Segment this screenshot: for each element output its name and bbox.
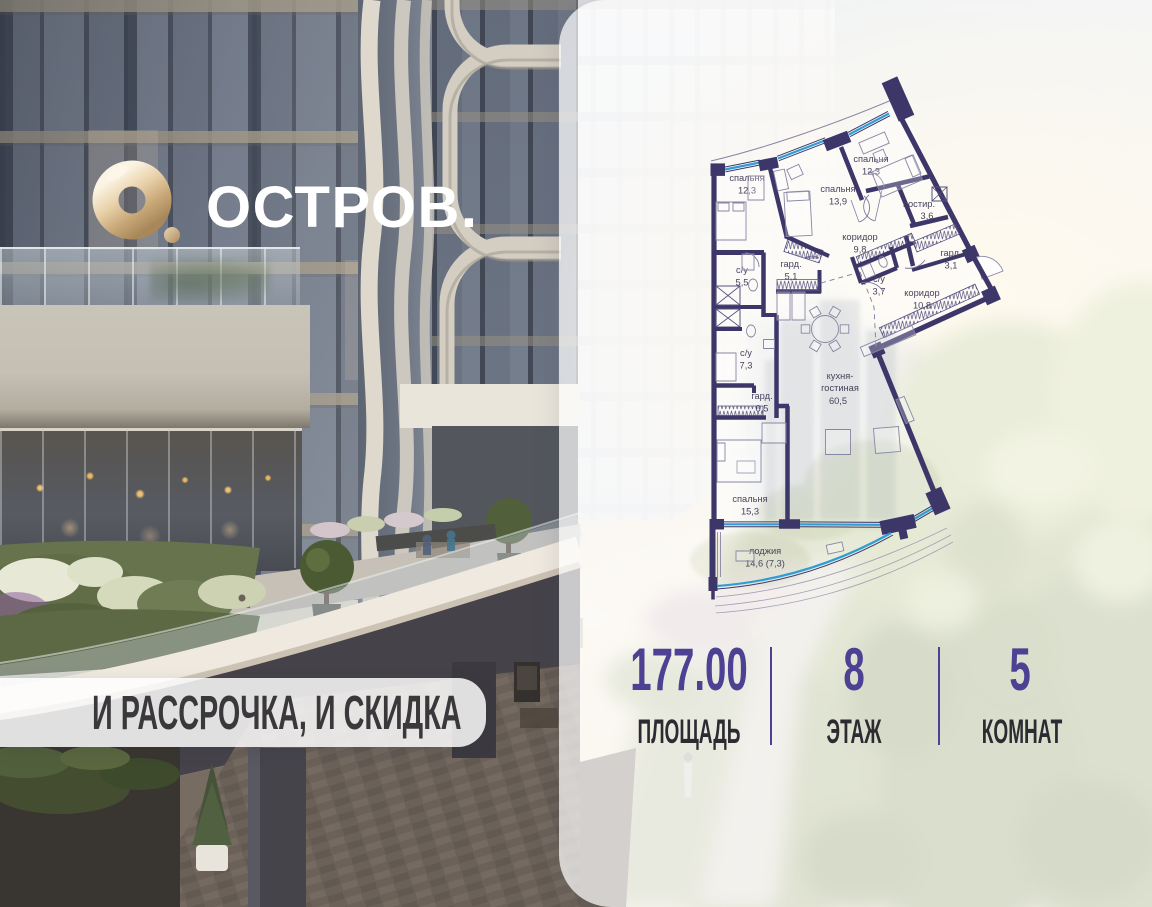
svg-text:7,3: 7,3 bbox=[740, 361, 753, 371]
svg-text:3,1: 3,1 bbox=[945, 261, 958, 271]
svg-text:коридор: коридор bbox=[842, 232, 877, 242]
svg-text:6,5: 6,5 bbox=[756, 404, 769, 414]
svg-text:коридор: коридор bbox=[904, 288, 939, 298]
svg-text:3,7: 3,7 bbox=[873, 287, 886, 297]
svg-text:спальня: спальня bbox=[732, 494, 767, 504]
svg-text:3,6: 3,6 bbox=[921, 211, 934, 221]
svg-text:гард.: гард. bbox=[780, 259, 801, 269]
svg-text:13,9: 13,9 bbox=[829, 197, 847, 207]
svg-text:спальня: спальня bbox=[820, 184, 855, 194]
svg-text:кухня-: кухня- bbox=[827, 371, 854, 381]
svg-text:10,8: 10,8 bbox=[913, 301, 931, 311]
svg-text:гард.: гард. bbox=[940, 248, 961, 258]
svg-text:5,5: 5,5 bbox=[736, 278, 749, 288]
svg-text:5,1: 5,1 bbox=[785, 272, 798, 282]
svg-text:гостиная: гостиная bbox=[821, 383, 859, 393]
svg-text:постир.: постир. bbox=[903, 199, 935, 209]
svg-text:60,5: 60,5 bbox=[829, 396, 847, 406]
svg-text:с/у: с/у bbox=[740, 348, 752, 358]
svg-text:15,3: 15,3 bbox=[741, 507, 759, 517]
svg-text:гард.: гард. bbox=[751, 391, 772, 401]
svg-text:9,8: 9,8 bbox=[854, 245, 867, 255]
